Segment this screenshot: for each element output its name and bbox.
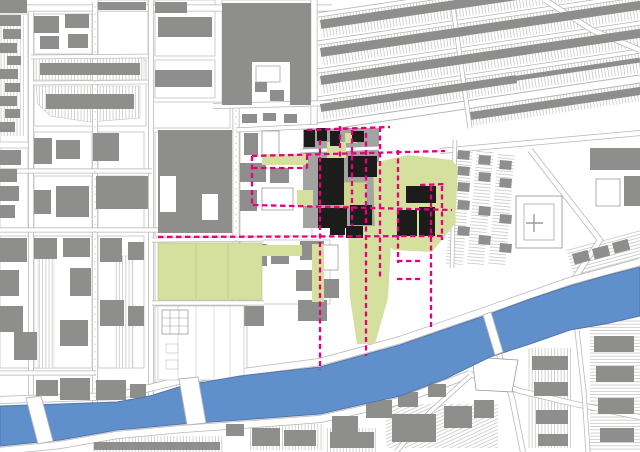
gray-buildings-shape xyxy=(155,70,212,87)
gray-buildings-shape xyxy=(596,366,634,382)
gray-buildings-shape xyxy=(5,83,20,92)
gray-buildings-shape xyxy=(478,206,491,216)
gray-buildings-shape xyxy=(63,238,90,257)
gray-buildings-shape xyxy=(100,238,122,262)
park xyxy=(158,243,262,300)
gray-buildings-shape xyxy=(332,416,358,436)
gray-buildings-shape xyxy=(590,148,640,170)
gray-buildings-shape xyxy=(284,114,297,123)
gray-buildings-shape xyxy=(624,176,640,206)
gray-buildings-shape xyxy=(457,226,470,236)
gray-buildings-shape xyxy=(14,332,37,360)
gray-buildings-shape xyxy=(532,356,568,370)
gray-buildings-shape xyxy=(536,410,568,424)
gray-buildings-shape xyxy=(240,190,257,211)
gray-buildings-shape xyxy=(499,178,512,188)
gray-buildings-shape xyxy=(46,94,134,109)
gray-buildings-shape xyxy=(34,16,59,33)
green-spaces-shape xyxy=(312,244,324,302)
gray-buildings-shape xyxy=(0,150,21,165)
gray-buildings-shape xyxy=(478,155,491,165)
gray-buildings-shape xyxy=(70,268,91,296)
gray-buildings-shape xyxy=(100,300,124,326)
gray-buildings-shape xyxy=(392,414,436,442)
green-spaces-shape xyxy=(297,190,313,206)
outlined-buildings-shape xyxy=(256,66,280,82)
gray-buildings-shape xyxy=(0,306,23,332)
gray-buildings-shape xyxy=(478,172,491,182)
outlined-buildings-shape xyxy=(262,188,293,210)
gray-buildings-shape xyxy=(0,15,21,26)
black-buildings-shape xyxy=(304,130,315,147)
gray-buildings-shape xyxy=(600,428,634,442)
gray-buildings-shape xyxy=(0,238,27,262)
gray-buildings-shape xyxy=(0,186,19,201)
gray-buildings-shape xyxy=(7,56,21,65)
gray-buildings-shape xyxy=(5,109,20,118)
gray-buildings-shape xyxy=(322,279,339,298)
gray-buildings-shape xyxy=(478,235,491,245)
gray-buildings-shape xyxy=(255,82,267,92)
gray-buildings-shape xyxy=(0,0,27,13)
gray-buildings-shape xyxy=(0,169,17,182)
green-corridor xyxy=(348,226,392,344)
black-buildings-shape xyxy=(318,208,347,228)
gray-buildings-shape xyxy=(598,398,634,414)
gray-buildings-shape xyxy=(34,238,57,259)
gray-buildings-shape xyxy=(60,320,88,346)
gray-buildings-shape xyxy=(130,384,146,398)
greenhouse xyxy=(162,310,188,334)
gray-buildings-shape xyxy=(36,380,58,396)
gray-buildings-shape xyxy=(40,63,140,75)
gray-buildings-shape xyxy=(457,166,470,176)
map-canvas xyxy=(0,0,640,452)
gray-buildings-shape xyxy=(474,400,494,418)
gray-buildings-shape xyxy=(96,380,126,400)
gray-buildings-shape xyxy=(128,242,144,260)
streets-shape xyxy=(152,239,264,240)
gray-buildings-shape xyxy=(0,69,18,79)
gray-buildings-shape xyxy=(226,424,244,436)
gray-buildings-shape xyxy=(428,384,446,397)
gray-buildings-shape xyxy=(499,160,512,170)
black-buildings-shape xyxy=(397,210,417,236)
gray-buildings-shape xyxy=(0,43,17,53)
gray-buildings-shape xyxy=(96,176,148,209)
outlined-buildings-shape xyxy=(160,176,176,212)
gray-buildings-shape xyxy=(284,430,316,446)
gray-buildings-shape xyxy=(94,442,220,450)
gray-buildings-shape xyxy=(0,270,19,296)
gray-buildings-shape xyxy=(499,243,512,253)
gray-buildings-shape xyxy=(155,2,187,13)
gray-buildings-shape xyxy=(499,214,512,224)
gray-buildings-shape xyxy=(252,428,280,446)
gray-buildings-shape xyxy=(56,186,89,217)
streets-shape xyxy=(31,56,148,57)
gray-buildings-shape xyxy=(538,434,568,446)
terrace-strips-shape xyxy=(38,256,54,368)
gray-buildings-shape xyxy=(158,17,212,37)
gray-buildings-shape xyxy=(270,90,284,101)
gray-buildings-shape xyxy=(65,14,89,28)
black-buildings-shape xyxy=(352,131,364,142)
gray-buildings-shape xyxy=(60,378,90,400)
gray-buildings-shape xyxy=(594,336,634,352)
gray-buildings-shape xyxy=(68,34,88,48)
gray-buildings-shape xyxy=(34,138,52,164)
streets-shape xyxy=(33,82,148,83)
gray-buildings-shape xyxy=(534,382,568,396)
gray-buildings-shape xyxy=(242,114,257,123)
gray-buildings-shape xyxy=(40,36,59,49)
gray-buildings-shape xyxy=(0,205,15,218)
gray-buildings-shape xyxy=(34,190,51,214)
gray-buildings-shape xyxy=(128,306,144,326)
gray-buildings-shape xyxy=(0,122,15,132)
gray-buildings-shape xyxy=(98,2,146,10)
black-buildings-shape xyxy=(330,131,340,146)
outlined-buildings-shape xyxy=(596,179,620,206)
black-buildings-shape xyxy=(330,226,345,235)
planning-axes-shape xyxy=(420,184,447,185)
gray-buildings-shape xyxy=(93,133,119,161)
gray-buildings-shape xyxy=(444,406,472,428)
gray-buildings-shape xyxy=(457,182,470,192)
masterplan-map xyxy=(0,0,640,452)
gray-buildings-shape xyxy=(56,140,80,159)
gray-buildings-shape xyxy=(457,200,470,210)
black-buildings-shape xyxy=(318,158,344,205)
gray-buildings-shape xyxy=(244,133,258,155)
gray-buildings-shape xyxy=(0,96,17,106)
gray-buildings-shape xyxy=(3,29,21,39)
outlined-buildings-shape xyxy=(262,131,279,155)
gray-buildings-shape xyxy=(263,113,276,121)
gray-buildings-shape xyxy=(298,300,327,321)
black-buildings-shape xyxy=(419,207,435,236)
outlined-buildings-shape xyxy=(202,194,218,220)
gray-buildings-shape xyxy=(270,168,289,183)
gray-buildings-shape xyxy=(457,150,470,160)
green-spaces-shape xyxy=(253,245,302,256)
